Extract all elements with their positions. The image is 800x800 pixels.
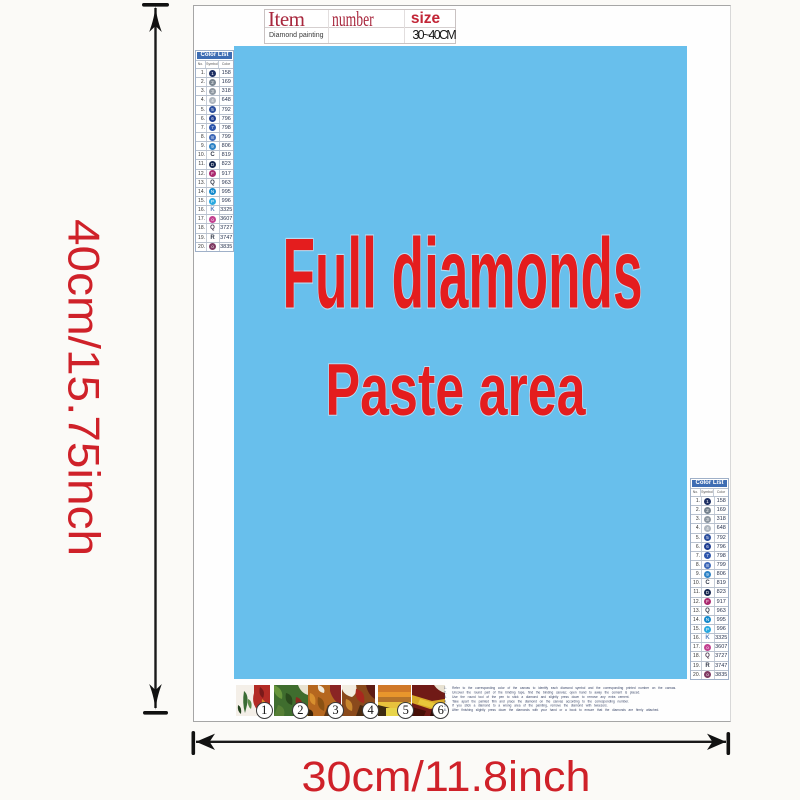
svg-text:Full diamonds: Full diamonds bbox=[283, 218, 643, 329]
svg-text:Paste area: Paste area bbox=[326, 350, 587, 431]
svg-text:30cm/11.8inch: 30cm/11.8inch bbox=[302, 754, 591, 800]
svg-text:40cm/15.75inch: 40cm/15.75inch bbox=[59, 219, 108, 556]
